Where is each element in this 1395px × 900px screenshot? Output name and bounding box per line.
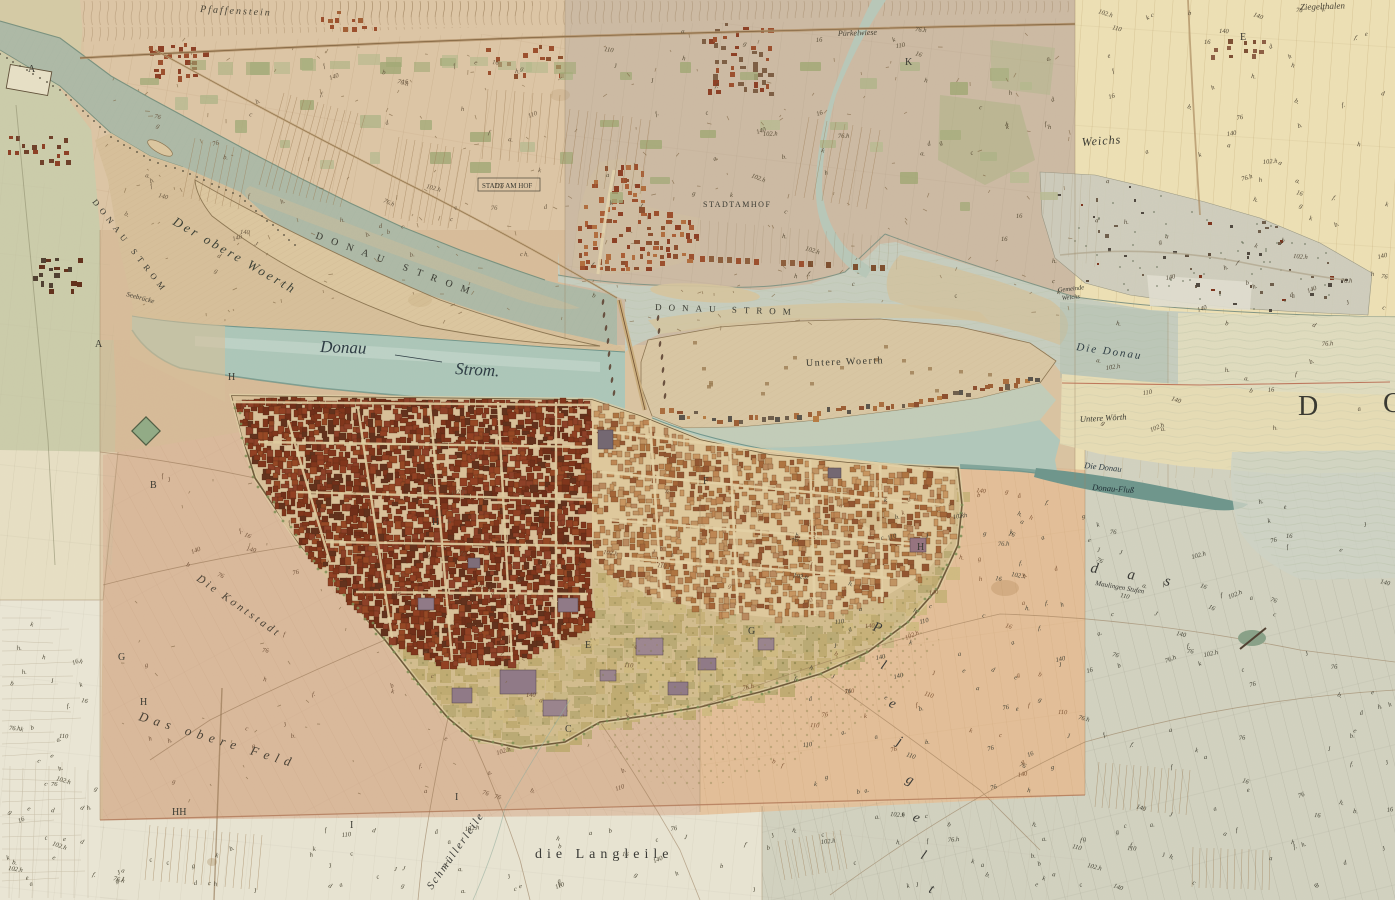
svg-text:A: A xyxy=(95,339,103,350)
svg-text:H: H xyxy=(432,517,439,528)
svg-text:C: C xyxy=(565,724,572,735)
svg-text:STADTAMHOF: STADTAMHOF xyxy=(703,200,771,209)
svg-text:E: E xyxy=(1240,32,1246,43)
svg-text:Pürkelwiese: Pürkelwiese xyxy=(837,28,878,38)
svg-text:H: H xyxy=(228,372,235,383)
svg-text:G: G xyxy=(748,626,755,637)
svg-text:Weichs: Weichs xyxy=(1081,132,1121,149)
svg-text:B: B xyxy=(150,480,157,491)
svg-text:Ziegelthalen: Ziegelthalen xyxy=(1300,0,1346,12)
svg-text:I: I xyxy=(455,792,458,803)
svg-text:die Langleile: die Langleile xyxy=(535,847,673,862)
svg-text:C: C xyxy=(1383,388,1395,419)
svg-text:I: I xyxy=(350,820,353,831)
svg-text:A: A xyxy=(28,64,36,75)
svg-text:G: G xyxy=(118,652,125,663)
svg-text:STADT AM HOF: STADT AM HOF xyxy=(482,182,532,190)
svg-text:F: F xyxy=(703,476,709,487)
svg-text:H: H xyxy=(917,542,924,553)
svg-text:K: K xyxy=(905,57,913,68)
svg-text:Strom.: Strom. xyxy=(455,359,500,380)
svg-text:E: E xyxy=(585,640,591,651)
svg-text:HH: HH xyxy=(172,807,186,818)
svg-text:H: H xyxy=(140,697,147,708)
svg-text:D: D xyxy=(1298,391,1318,422)
svg-text:Donau: Donau xyxy=(319,337,367,358)
